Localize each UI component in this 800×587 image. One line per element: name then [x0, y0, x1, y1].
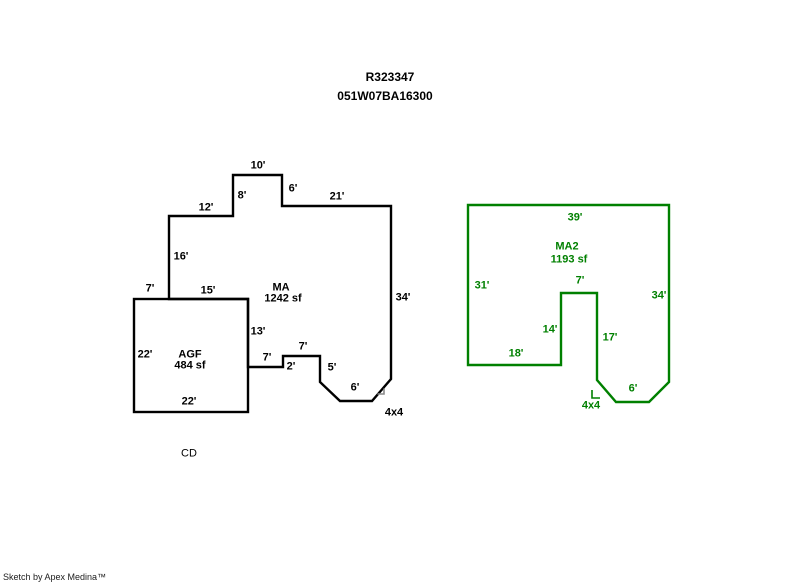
- secondary-area-sf: 1193 sf: [551, 255, 588, 266]
- dimension-label: 39': [568, 213, 583, 224]
- parcel-id: 051W07BA16300: [337, 90, 432, 102]
- dimension-label: 21': [330, 192, 345, 203]
- dimension-label: 7': [576, 276, 585, 287]
- dimension-label: 4x4: [582, 401, 600, 412]
- dimension-label: 5': [328, 363, 337, 374]
- record-id: R323347: [366, 71, 415, 83]
- secondary-area-outline: [468, 205, 669, 402]
- dimension-label: 10': [251, 161, 266, 172]
- dimension-label: 7': [299, 342, 308, 353]
- sketch-page: R323347 051W07BA16300 MA 1242 sf AGF 484…: [0, 0, 800, 587]
- dimension-label: 22': [182, 397, 197, 408]
- dimension-label: 4x4: [385, 408, 403, 419]
- dimension-label: 22': [138, 350, 153, 361]
- secondary-area-name: MA2: [555, 242, 578, 253]
- dimension-label: 31': [475, 281, 490, 292]
- garage-area-sf: 484 sf: [174, 361, 205, 372]
- dimension-label: 8': [238, 191, 247, 202]
- dimension-label: 13': [251, 327, 266, 338]
- dimension-label: 34': [652, 291, 667, 302]
- dimension-label: 16': [174, 252, 189, 263]
- dimension-label: 12': [199, 203, 214, 214]
- dimension-label: 17': [603, 333, 618, 344]
- credit-text: Sketch by Apex Medina™: [3, 572, 106, 582]
- comment-label: CD: [181, 449, 197, 460]
- main-area-sf: 1242 sf: [264, 294, 301, 305]
- dimension-label: 15': [201, 286, 216, 297]
- dimension-label: 18': [509, 349, 524, 360]
- dimension-label: 2': [287, 362, 296, 373]
- dimension-label: 7': [146, 284, 155, 295]
- dimension-label: 6': [629, 384, 638, 395]
- corner-angle-mark-icon: [592, 390, 600, 398]
- dimension-label: 14': [543, 325, 558, 336]
- dimension-label: 34': [396, 293, 411, 304]
- dimension-label: 6': [289, 184, 298, 195]
- dimension-label: 7': [263, 353, 272, 364]
- dimension-label: 6': [351, 383, 360, 394]
